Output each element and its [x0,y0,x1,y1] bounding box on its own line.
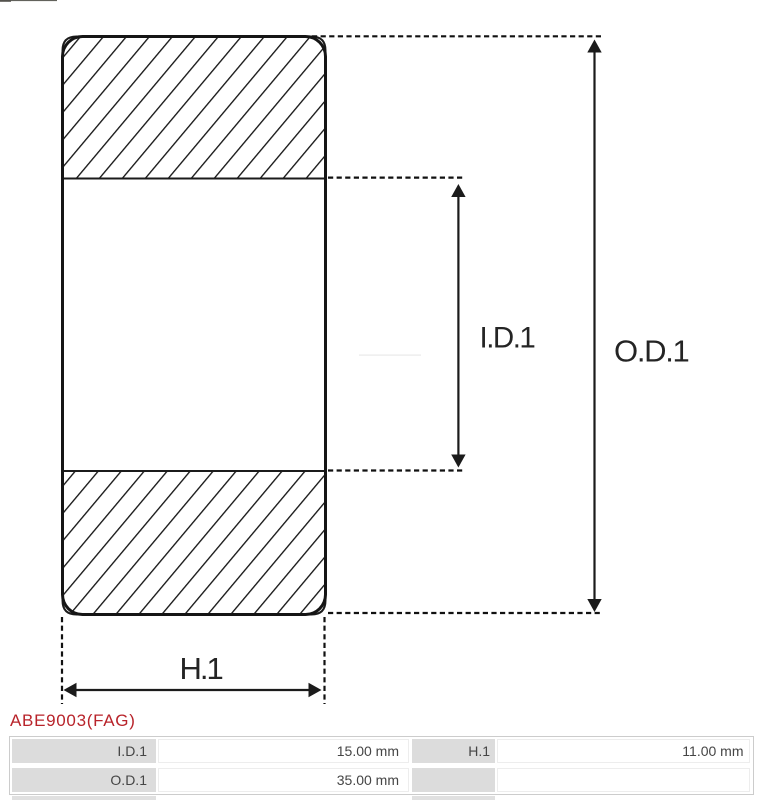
svg-text:O.D.1: O.D.1 [614,334,689,369]
svg-text:H.1: H.1 [180,651,223,686]
svg-text:I.D.1: I.D.1 [480,322,535,355]
